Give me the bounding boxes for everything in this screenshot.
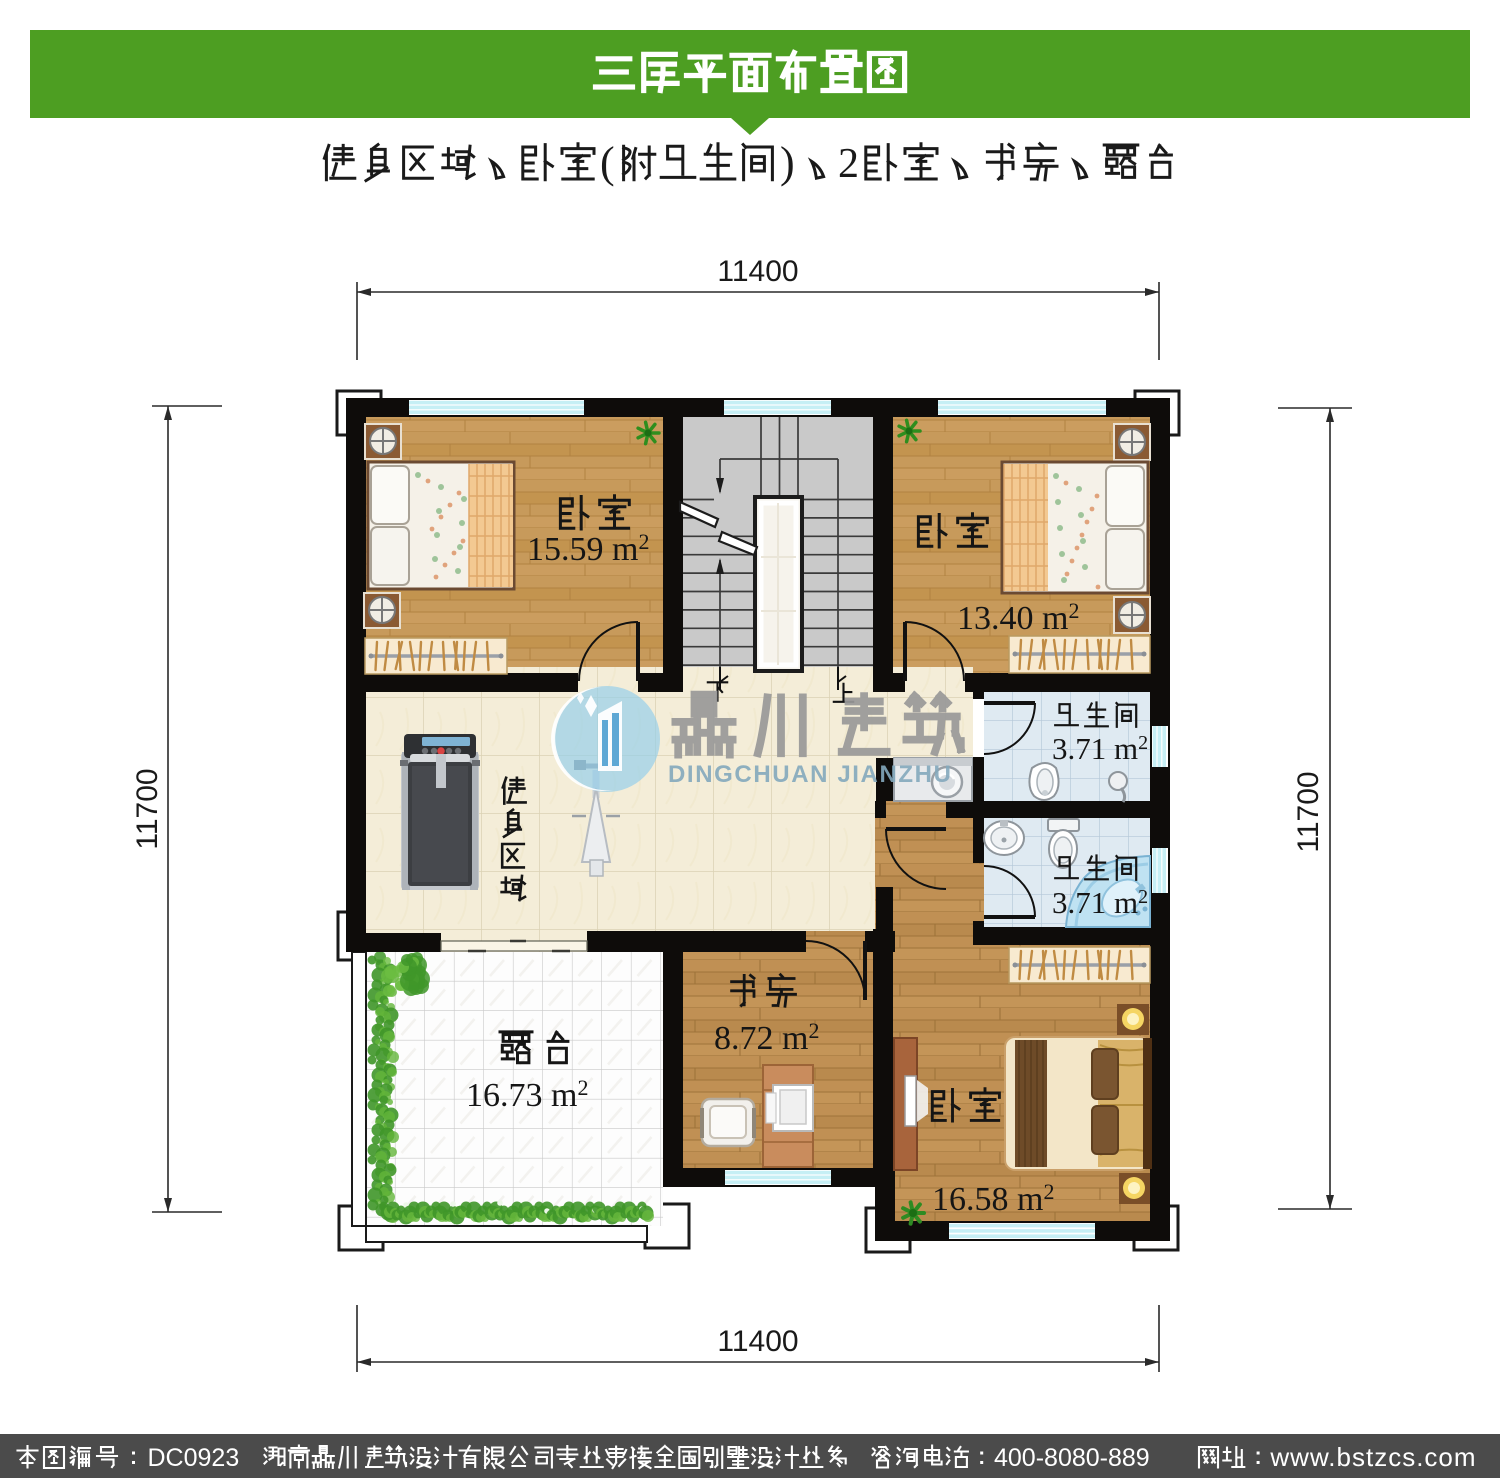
svg-text:11700: 11700 <box>1292 771 1325 852</box>
svg-text:15.59 m2: 15.59 m2 <box>527 529 649 568</box>
svg-text:11400: 11400 <box>717 255 798 288</box>
svg-text:400-8080-889: 400-8080-889 <box>994 1444 1150 1472</box>
svg-text:16.58 m2: 16.58 m2 <box>932 1179 1054 1218</box>
svg-text:www.bstzcs.com: www.bstzcs.com <box>1269 1442 1476 1472</box>
svg-text:3.71 m2: 3.71 m2 <box>1052 885 1148 920</box>
svg-text:DC0923: DC0923 <box>148 1444 240 1472</box>
svg-text:DINGCHUAN JIANZHU: DINGCHUAN JIANZHU <box>668 761 953 788</box>
svg-text:16.73 m2: 16.73 m2 <box>466 1075 588 1114</box>
svg-text:11400: 11400 <box>717 1325 798 1358</box>
svg-text:(: ( <box>600 138 615 187</box>
svg-text:8.72 m2: 8.72 m2 <box>714 1018 819 1057</box>
svg-text:2: 2 <box>838 141 859 187</box>
svg-text:): ) <box>780 138 795 187</box>
svg-text:11700: 11700 <box>131 768 164 849</box>
svg-text:3.71 m2: 3.71 m2 <box>1052 731 1148 766</box>
svg-text:13.40 m2: 13.40 m2 <box>957 598 1079 637</box>
